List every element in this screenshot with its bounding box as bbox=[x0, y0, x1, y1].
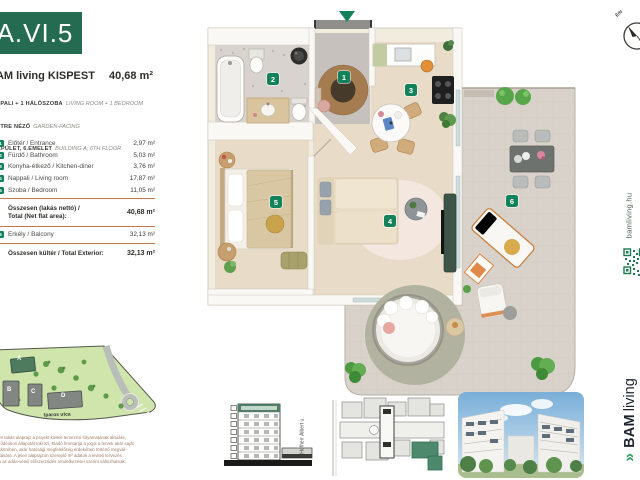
room-area: 3,76 m² bbox=[133, 163, 155, 170]
bathroom-vanity bbox=[247, 98, 289, 123]
table-separator bbox=[0, 226, 155, 227]
room-label: Konyha-étkező / Kitchen-diner bbox=[8, 163, 94, 170]
room-number-badge: 6 bbox=[0, 231, 4, 238]
total-net-area: 40,68 m² bbox=[127, 209, 155, 216]
room-area: 11,05 m² bbox=[130, 187, 155, 194]
area-row: 3 Konyha-étkező / Kitchen-diner 3,76 m² bbox=[0, 161, 155, 173]
ottoman bbox=[281, 252, 307, 269]
floor-marker-1: 1 bbox=[338, 71, 350, 83]
datasheet-page: A.VI.5 BAM living KISPEST 40,68 m² NAPPA… bbox=[0, 0, 640, 480]
terrace-glass-door bbox=[456, 90, 460, 146]
toilet bbox=[249, 49, 264, 73]
room-number-badge: 5 bbox=[0, 187, 4, 194]
floor-marker-6: 6 bbox=[506, 195, 518, 207]
disclaimer-text: A jelen lakás alaprajz a projekt kivitel… bbox=[0, 435, 162, 465]
toilet-2 bbox=[291, 98, 307, 121]
floor-plan-graphic bbox=[185, 6, 597, 402]
site-building-label-d: D bbox=[61, 393, 65, 399]
qr-code bbox=[623, 248, 640, 278]
entrance-arrow-icon bbox=[339, 11, 355, 22]
nightstand-2 bbox=[218, 243, 236, 261]
key-plan-street-label: Hofherr Albert u. bbox=[300, 401, 309, 471]
terrace-glass-door bbox=[456, 176, 460, 268]
floor-marker-2: 2 bbox=[267, 73, 279, 85]
logo-chevron-icon: » bbox=[623, 453, 637, 462]
total-exterior-row: Összesen kültér / Total Exterior: 32,13 … bbox=[0, 247, 155, 261]
site-building-label-c: C bbox=[31, 389, 35, 395]
site-street-label: Iparos utca bbox=[44, 412, 71, 419]
washing-machine bbox=[291, 48, 308, 65]
room-label: Fürdő / Bathroom bbox=[8, 152, 58, 159]
site-building-label-b: B bbox=[7, 387, 11, 393]
site-plan-graphic bbox=[0, 344, 161, 436]
unit-code: A.VI.5 bbox=[0, 18, 73, 49]
compass-icon bbox=[620, 18, 640, 54]
round-daybed bbox=[365, 285, 465, 385]
room-number-badge: 4 bbox=[0, 175, 4, 182]
area-row: 1 Előtér / Entrance 2,97 m² bbox=[0, 138, 155, 150]
bed bbox=[220, 168, 293, 250]
feature-line: KERTRE NÉZŐGARDEN-FACING bbox=[0, 115, 168, 133]
website-url: bamliving.hu bbox=[625, 181, 634, 251]
feature-line: NAPPALI + 1 HÁLÓSZOBALIVING ROOM + 1 BED… bbox=[0, 92, 168, 110]
small-table bbox=[503, 306, 517, 320]
terrace-plant-3 bbox=[463, 285, 471, 293]
project-title: BAM living KISPEST bbox=[0, 70, 95, 82]
room-area: 2,97 m² bbox=[133, 140, 155, 147]
room-area: 5,03 m² bbox=[133, 152, 155, 159]
planter bbox=[464, 90, 494, 97]
nightstand bbox=[219, 152, 235, 168]
daybed-side-table bbox=[446, 318, 464, 336]
stool bbox=[318, 100, 330, 112]
total-exterior-label: Összesen kültér / Total Exterior: bbox=[8, 250, 104, 258]
room-area: 32,13 m² bbox=[130, 231, 155, 238]
area-table: 1 Előtér / Entrance 2,97 m² 2 Fürdő / Ba… bbox=[0, 138, 155, 260]
sofa bbox=[318, 178, 398, 244]
logo-text-bam: BAM bbox=[622, 414, 638, 448]
stove bbox=[432, 76, 454, 104]
unit-code-box: A.VI.5 bbox=[0, 12, 82, 54]
brand-logo: » BAM living bbox=[621, 353, 639, 480]
room-number-badge: 3 bbox=[0, 163, 4, 170]
room-label: Erkély / Balcony bbox=[8, 231, 54, 238]
coffee-table bbox=[405, 198, 427, 220]
room-label: Előtér / Entrance bbox=[8, 140, 56, 147]
bedroom-plant bbox=[224, 261, 236, 273]
table-separator bbox=[0, 198, 155, 199]
room-number-badge: 1 bbox=[0, 140, 4, 147]
room-number-badge: 2 bbox=[0, 152, 4, 159]
lounge-chair bbox=[476, 283, 507, 319]
area-row: 4 Nappali / Living room 17,87 m² bbox=[0, 173, 155, 185]
table-separator bbox=[0, 243, 155, 244]
building-photo bbox=[458, 392, 584, 478]
area-row: 2 Fürdő / Bathroom 5,03 m² bbox=[0, 150, 155, 162]
balcony-row: 6 Erkély / Balcony 32,13 m² bbox=[0, 229, 155, 241]
area-row: 5 Szoba / Bedroom 11,05 m² bbox=[0, 184, 155, 196]
compass-label: É/N bbox=[614, 9, 623, 18]
bathtub bbox=[217, 56, 244, 122]
total-area-value: 40,68 m² bbox=[109, 70, 153, 82]
key-plan-graphic bbox=[330, 396, 452, 480]
total-net-label: Összesen (lakás nettó) / Total (Net flat… bbox=[8, 205, 80, 220]
project-title-row: BAM living KISPEST 40,68 m² bbox=[0, 70, 153, 82]
total-net-row: Összesen (lakás nettó) / Total (Net flat… bbox=[0, 202, 155, 223]
floor-marker-5: 5 bbox=[270, 196, 282, 208]
room-label: Nappali / Living room bbox=[8, 175, 68, 182]
floor-marker-3: 3 bbox=[405, 84, 417, 96]
site-building-label-a: A bbox=[17, 356, 21, 362]
room-label: Szoba / Bedroom bbox=[8, 187, 57, 194]
floor-marker-4: 4 bbox=[384, 215, 396, 227]
room-area: 17,87 m² bbox=[130, 175, 155, 182]
total-exterior-area: 32,13 m² bbox=[127, 250, 155, 257]
logo-text-living: living bbox=[622, 378, 638, 411]
